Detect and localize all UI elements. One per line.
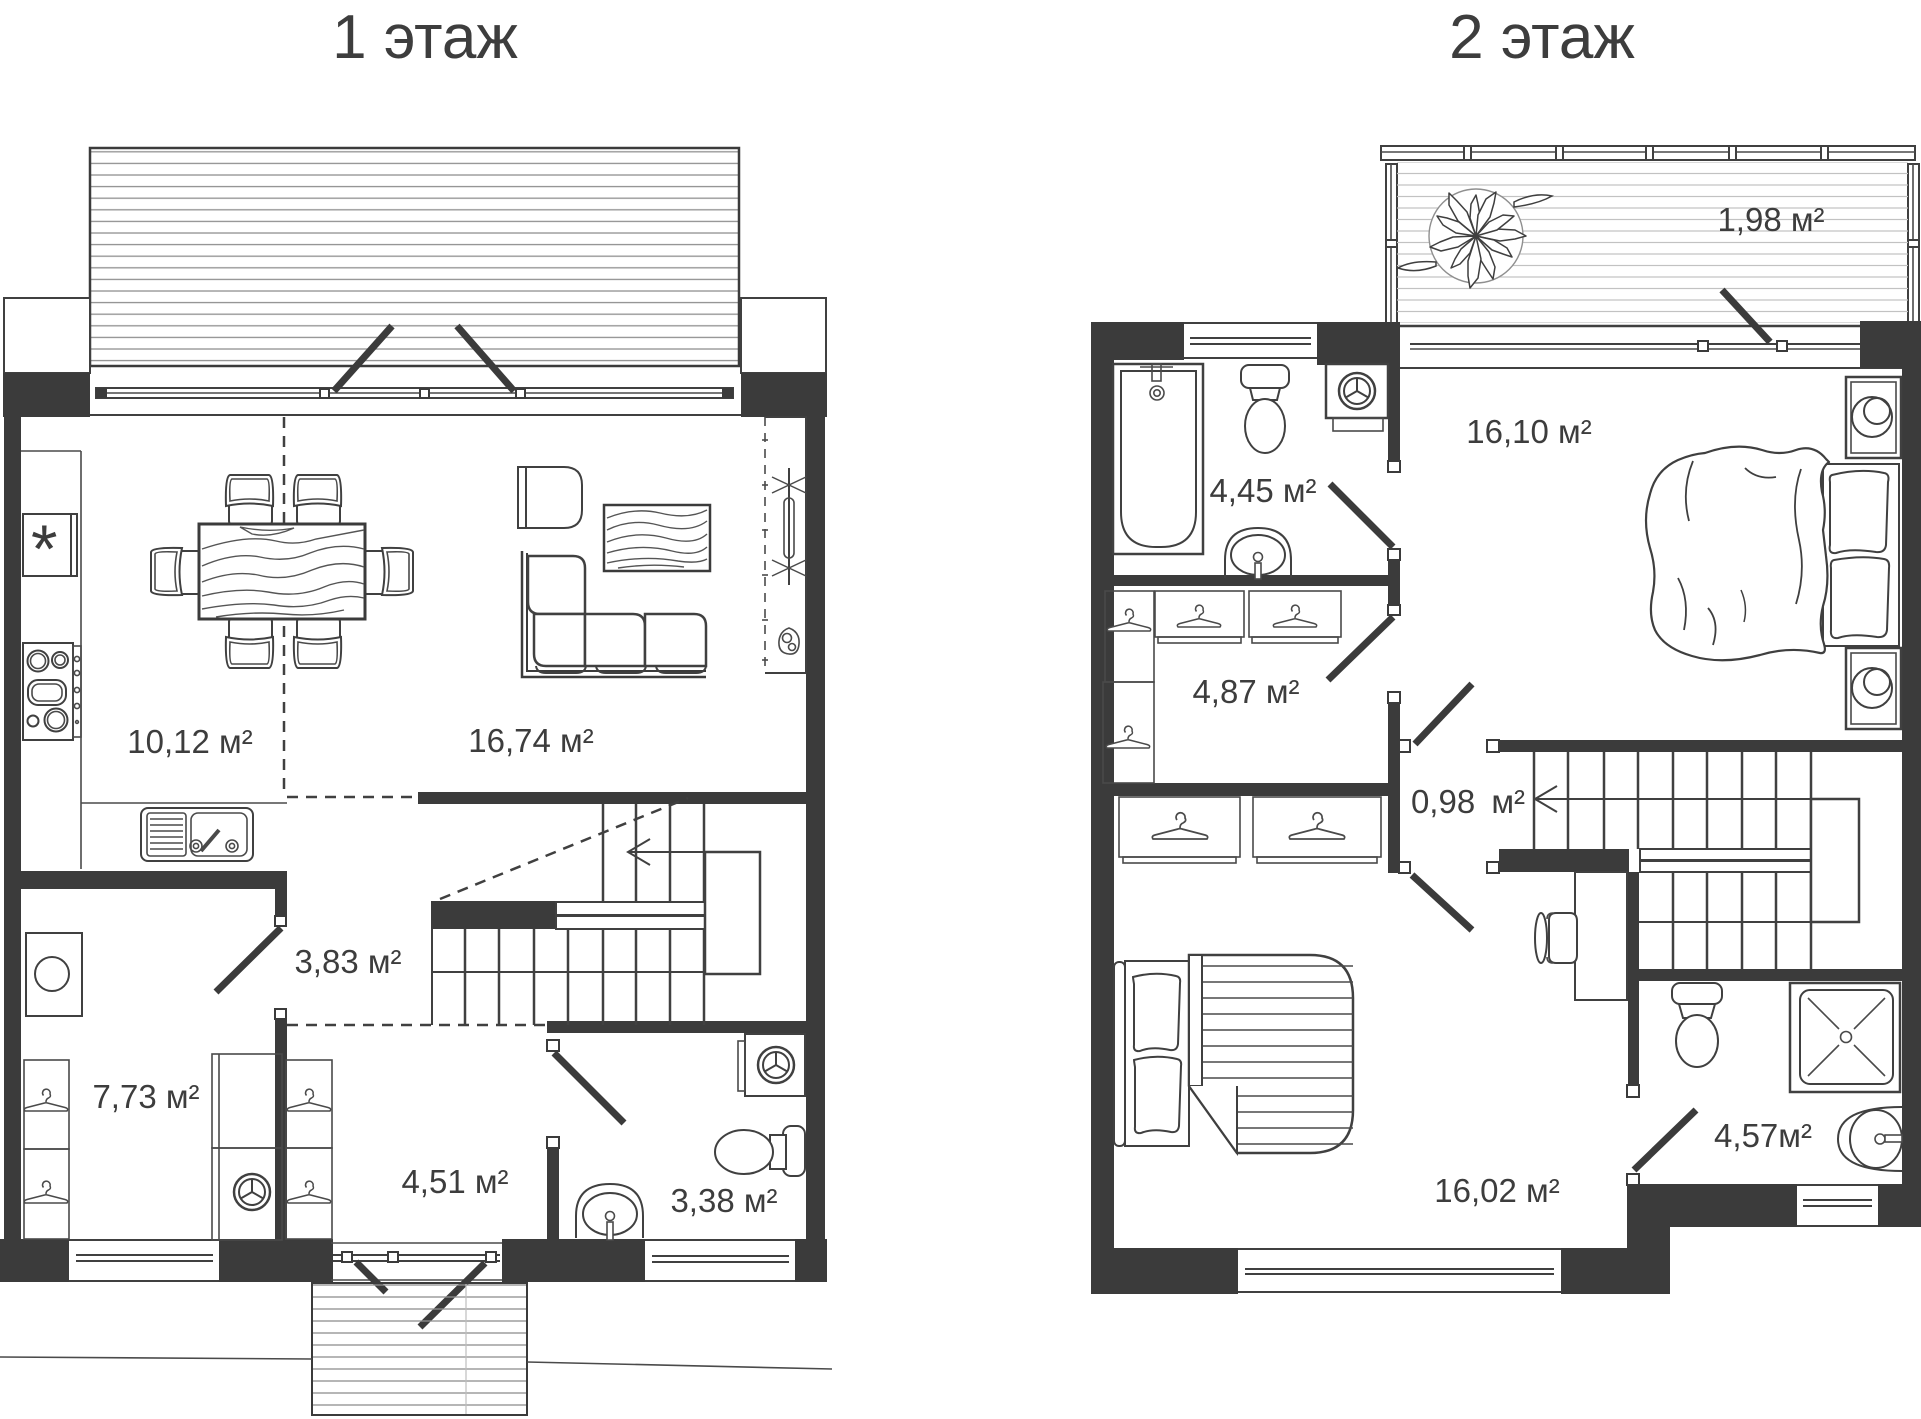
svg-text:4,51 м²: 4,51 м² [401, 1163, 508, 1200]
svg-text:16,74 м²: 16,74 м² [468, 722, 593, 759]
svg-text:4,87 м²: 4,87 м² [1192, 673, 1299, 710]
svg-text:16,02 м²: 16,02 м² [1434, 1172, 1559, 1209]
svg-text:1,98 м²: 1,98 м² [1717, 201, 1824, 238]
svg-text:2 этаж: 2 этаж [1449, 3, 1635, 72]
svg-text:3,83 м²: 3,83 м² [294, 943, 401, 980]
svg-text:1 этаж: 1 этаж [332, 3, 518, 72]
svg-text:10,12 м²: 10,12 м² [127, 723, 252, 760]
svg-text:4,45 м²: 4,45 м² [1209, 472, 1316, 509]
svg-text:4,57м²: 4,57м² [1714, 1117, 1812, 1154]
svg-text:16,10 м²: 16,10 м² [1466, 413, 1591, 450]
svg-text:3,38 м²: 3,38 м² [670, 1182, 777, 1219]
svg-text:*: * [31, 511, 57, 587]
svg-text:7,73 м²: 7,73 м² [92, 1078, 199, 1115]
svg-text:0,98 м²: 0,98 м² [1411, 783, 1525, 820]
